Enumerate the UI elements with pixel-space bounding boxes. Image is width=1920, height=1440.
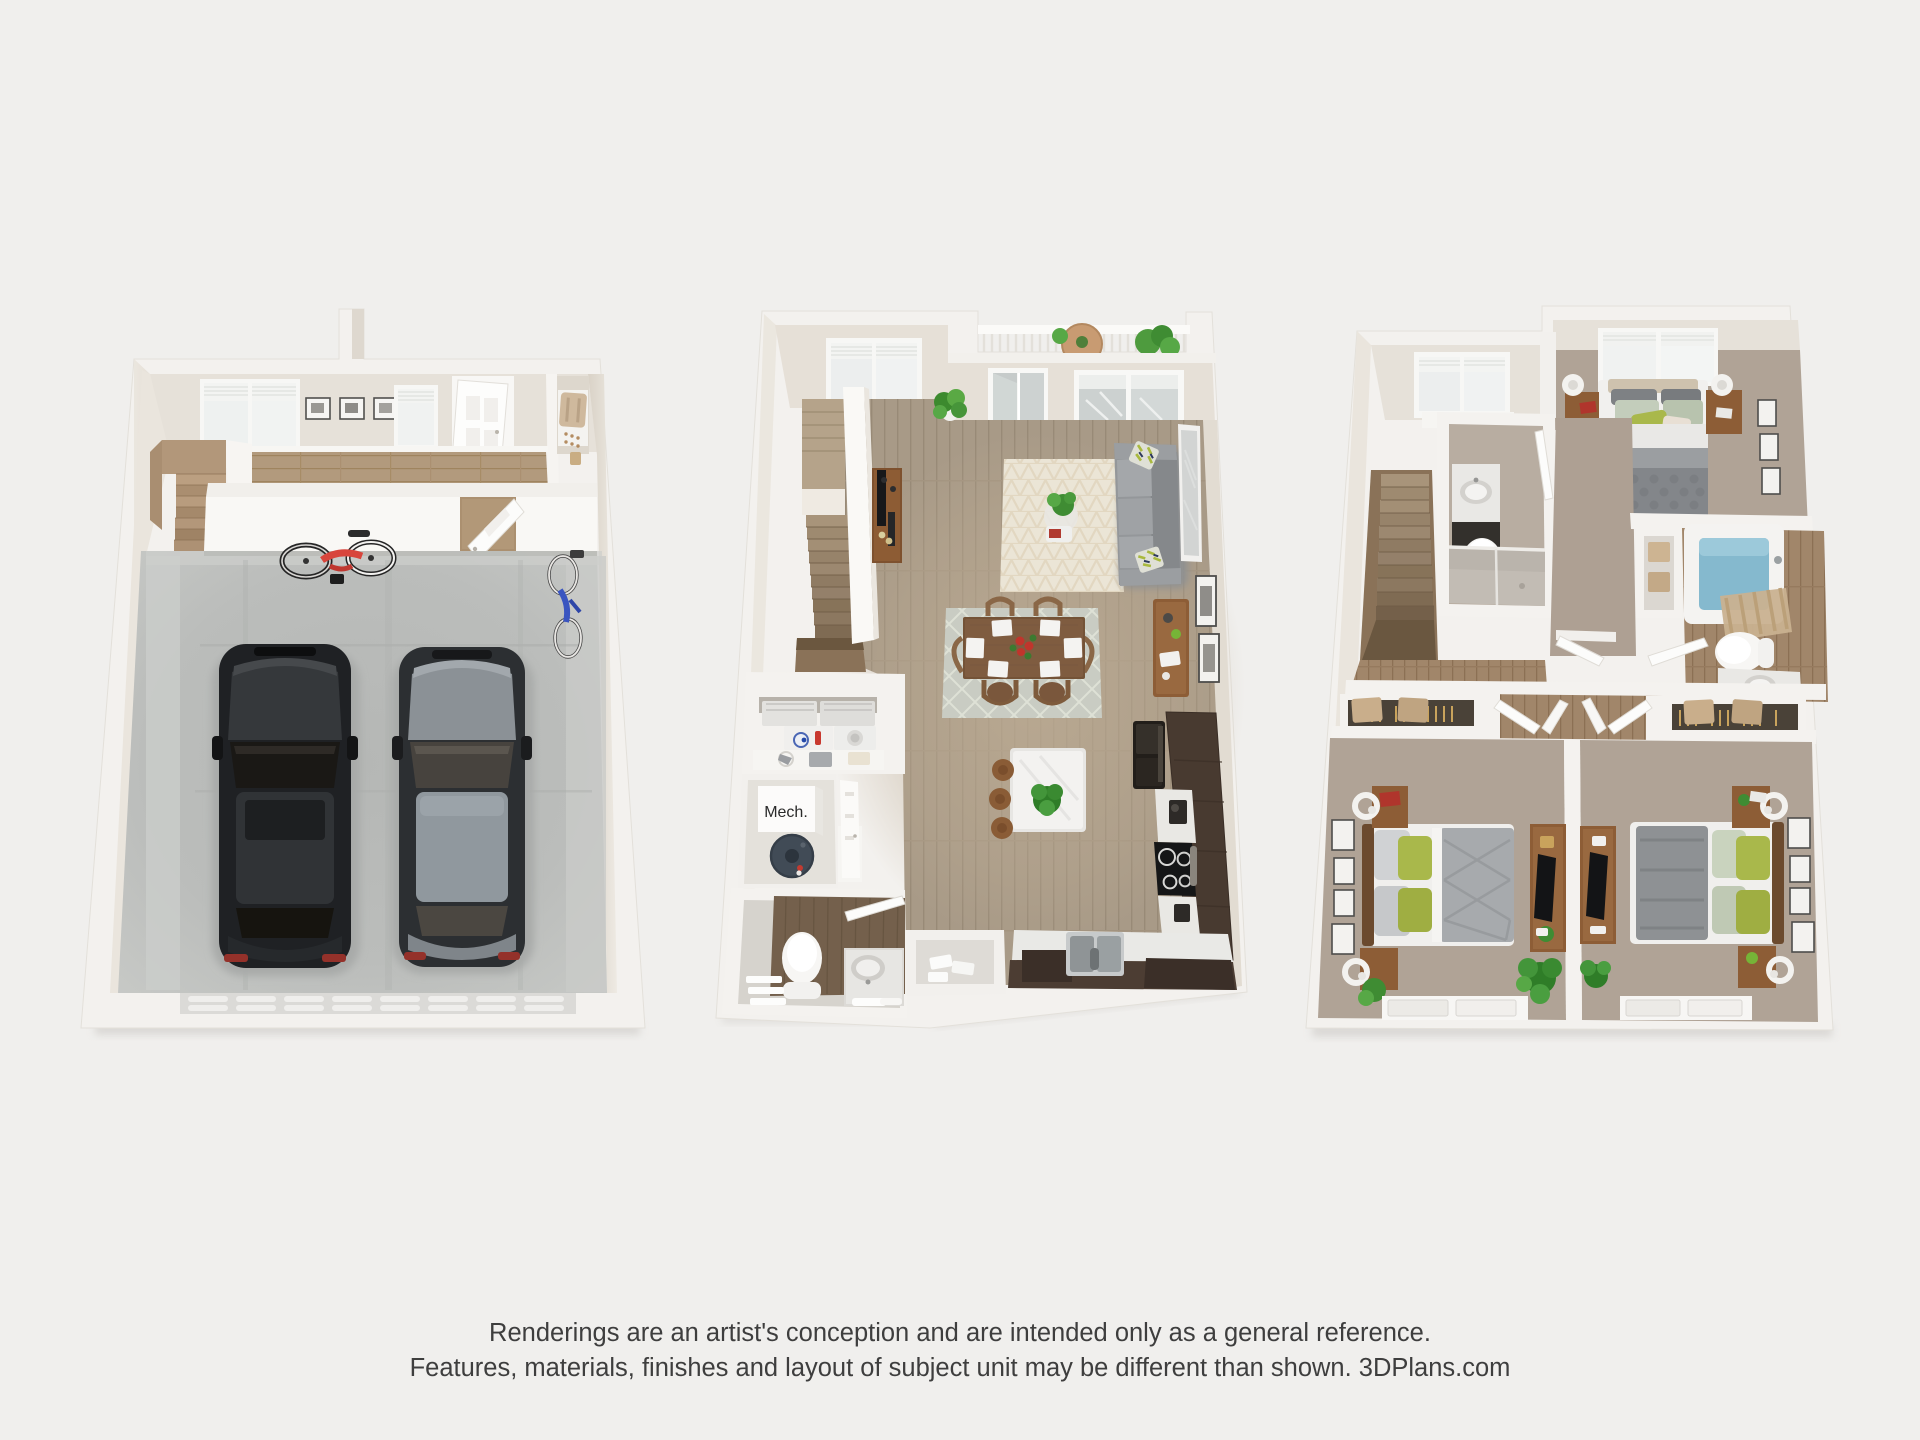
svg-text:Mech.: Mech. — [764, 804, 808, 821]
svg-text:Renderings are an artist's con: Renderings are an artist's conception an… — [489, 1319, 1431, 1347]
svg-text:Features, materials, finishes: Features, materials, finishes and layout… — [410, 1354, 1511, 1382]
